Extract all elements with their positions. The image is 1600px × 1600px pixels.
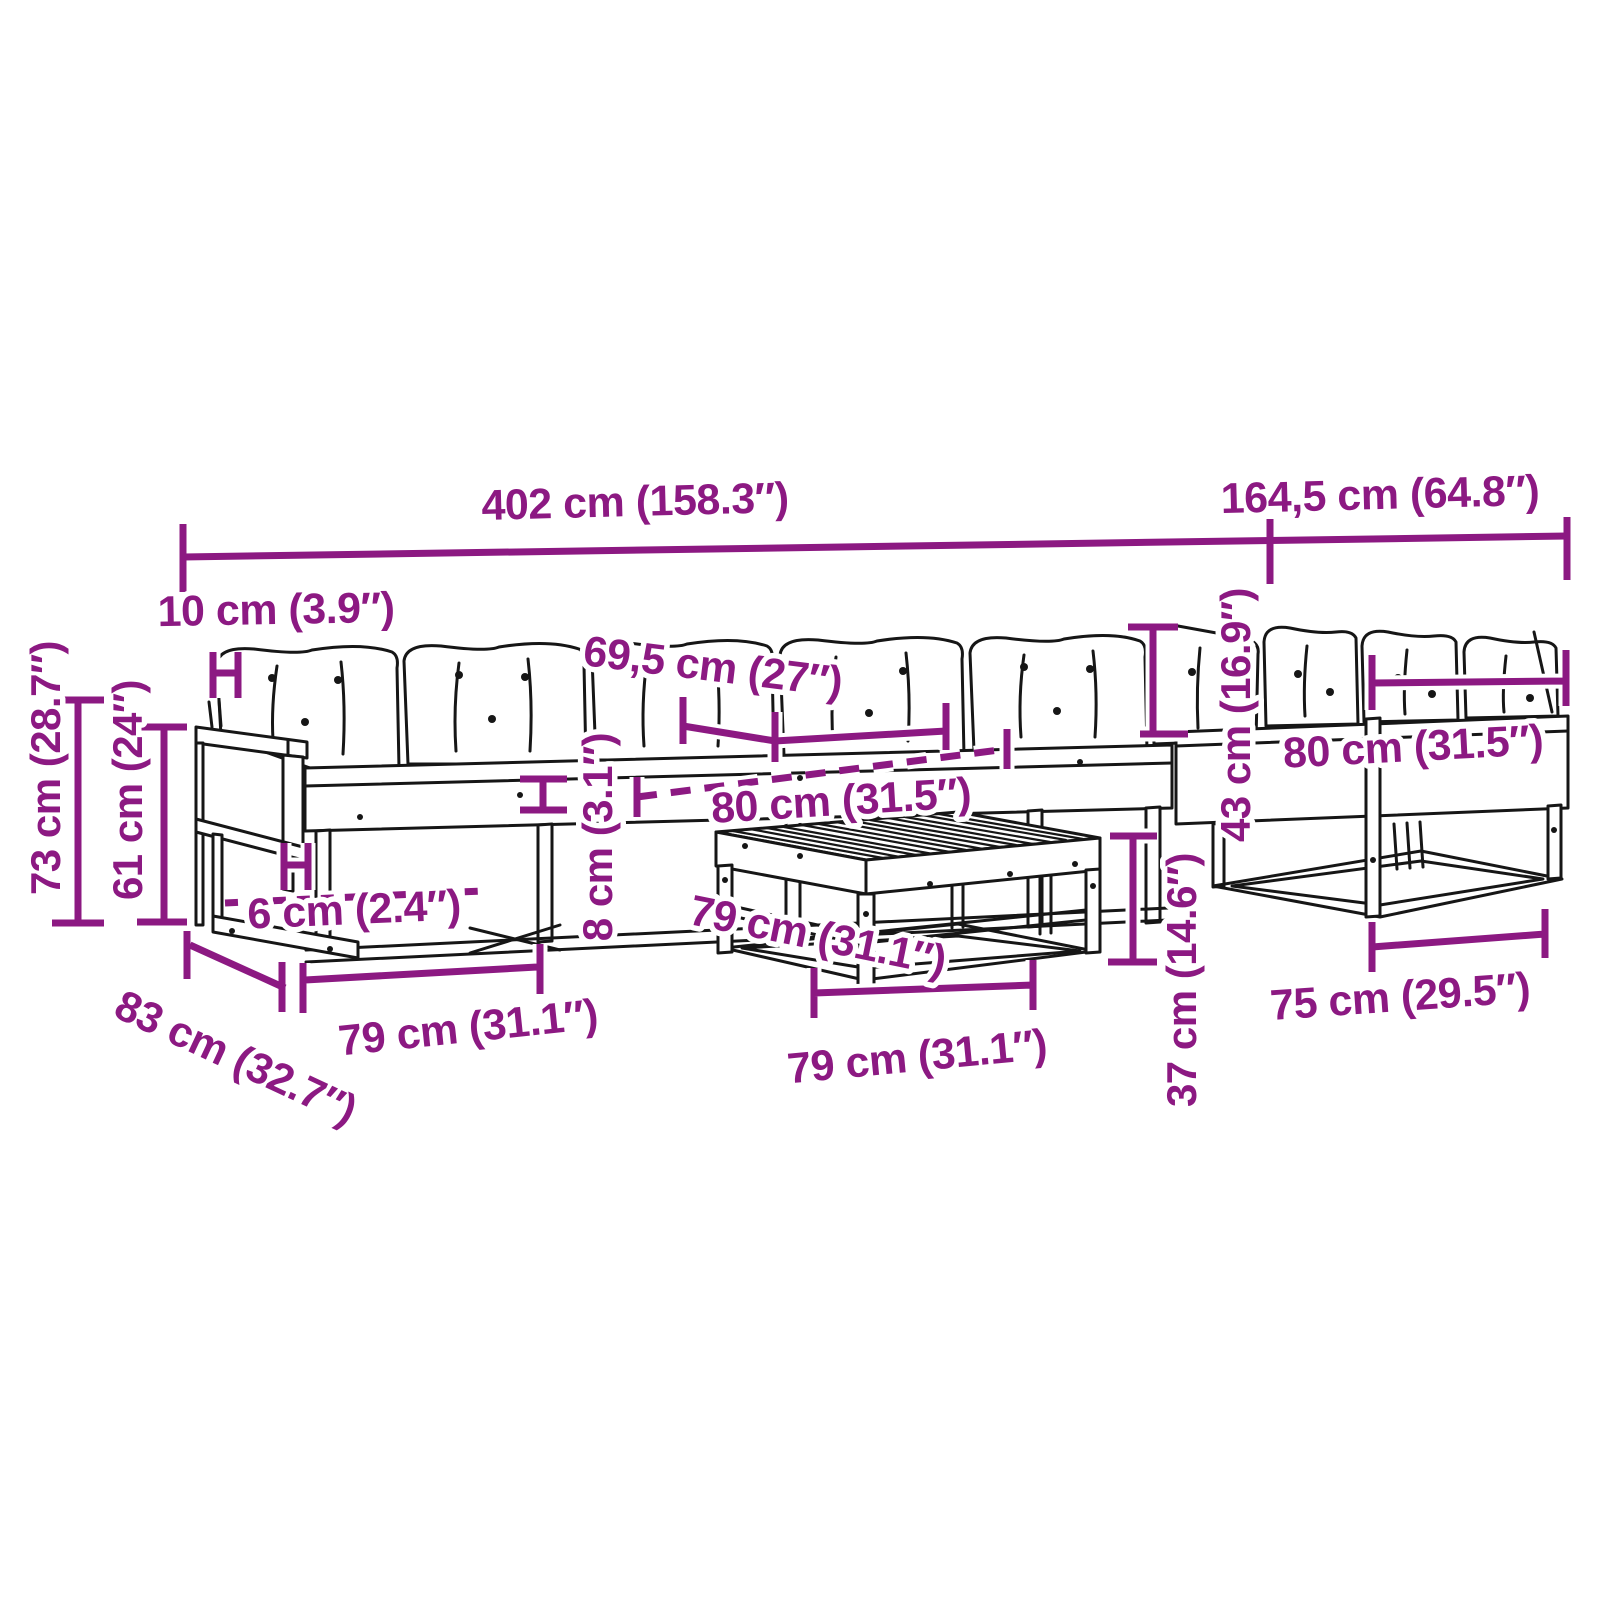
dim-label-overall-length: 402 cm (158.3″) [481,474,789,530]
dim-label-seat-height: 37 cm (14.6″) [1158,853,1205,1107]
dim-label-armrest-height: 61 cm (24″) [104,680,151,900]
dim-label-seat-thickness: 8 cm (3.1″) [574,733,621,941]
dim-label-bench-width: 75 cm (29.5″) [1269,964,1532,1030]
dim-label-backrest-height: 43 cm (16.9″) [1212,588,1259,842]
dim-label-armrest-width: 10 cm (3.9″) [157,584,395,636]
dim-label-right-section-length: 164,5 cm (64.8″) [1220,467,1540,523]
dimension-diagram-page: 402 cm (158.3″) 164,5 cm (64.8″) 10 cm (… [0,0,1600,1600]
dim-label-total-height: 73 cm (28.7″) [22,641,69,895]
dim-label-module-depth: 83 cm (32.7″) [107,981,363,1135]
dim-label-module-width: 79 cm (31.1″) [336,991,600,1066]
product-dimension-diagram: 402 cm (158.3″) 164,5 cm (64.8″) 10 cm (… [0,0,1600,1600]
dim-label-table-width: 79 cm (31.1″) [785,1021,1049,1094]
dim-label-board-thickness: 6 cm (2.4″) [246,881,461,938]
